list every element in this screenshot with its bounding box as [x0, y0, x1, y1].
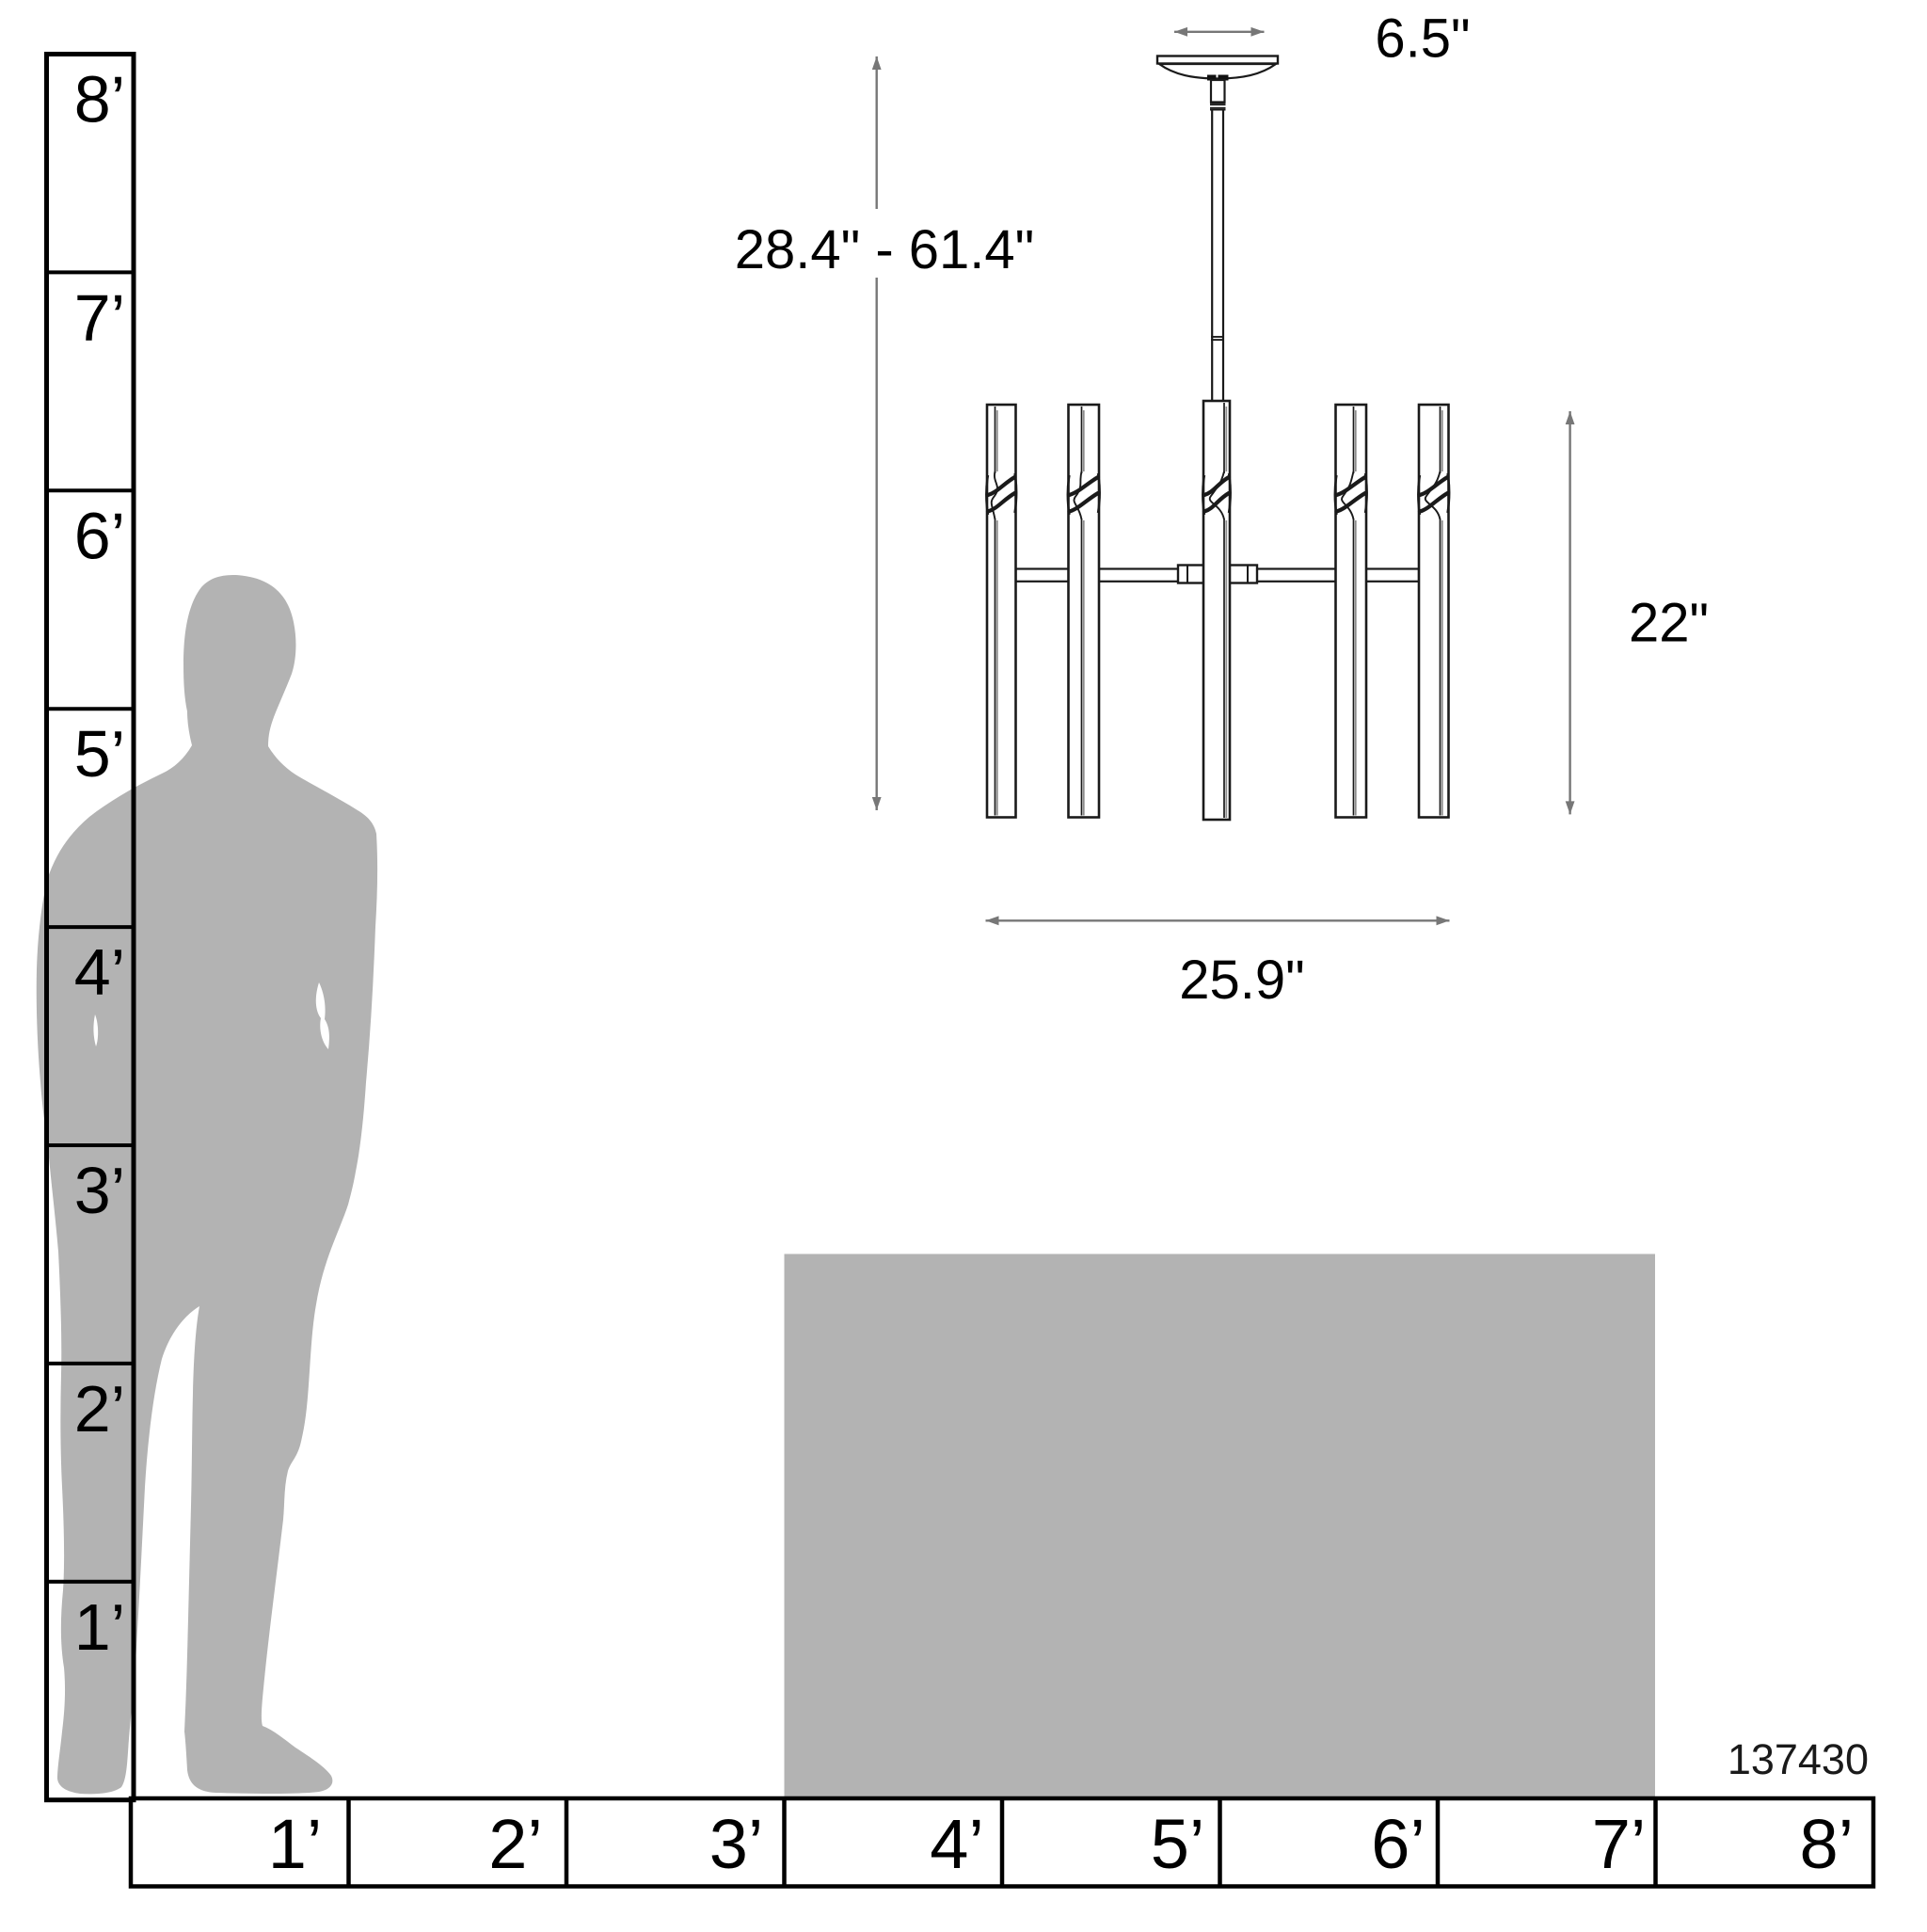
svg-text:1’: 1’ — [74, 1590, 125, 1664]
svg-text:28.4" - 61.4": 28.4" - 61.4" — [735, 219, 1035, 280]
svg-text:5’: 5’ — [74, 717, 125, 790]
svg-text:6’: 6’ — [74, 499, 125, 572]
svg-text:22": 22" — [1629, 593, 1709, 654]
svg-text:3’: 3’ — [709, 1805, 764, 1883]
svg-text:3’: 3’ — [74, 1154, 125, 1227]
svg-text:2’: 2’ — [74, 1372, 125, 1445]
svg-text:8’: 8’ — [74, 63, 125, 136]
svg-text:137430: 137430 — [1728, 1735, 1869, 1783]
svg-text:6’: 6’ — [1371, 1805, 1425, 1883]
svg-text:7’: 7’ — [1592, 1805, 1647, 1883]
svg-text:5’: 5’ — [1151, 1805, 1205, 1883]
svg-text:8’: 8’ — [1799, 1805, 1854, 1883]
svg-text:6.5": 6.5" — [1375, 8, 1470, 70]
svg-text:2’: 2’ — [488, 1805, 543, 1883]
svg-text:1’: 1’ — [268, 1805, 323, 1883]
svg-text:4’: 4’ — [930, 1805, 984, 1883]
svg-text:4’: 4’ — [74, 935, 125, 1009]
svg-text:25.9": 25.9" — [1179, 950, 1304, 1011]
svg-text:7’: 7’ — [74, 280, 125, 354]
